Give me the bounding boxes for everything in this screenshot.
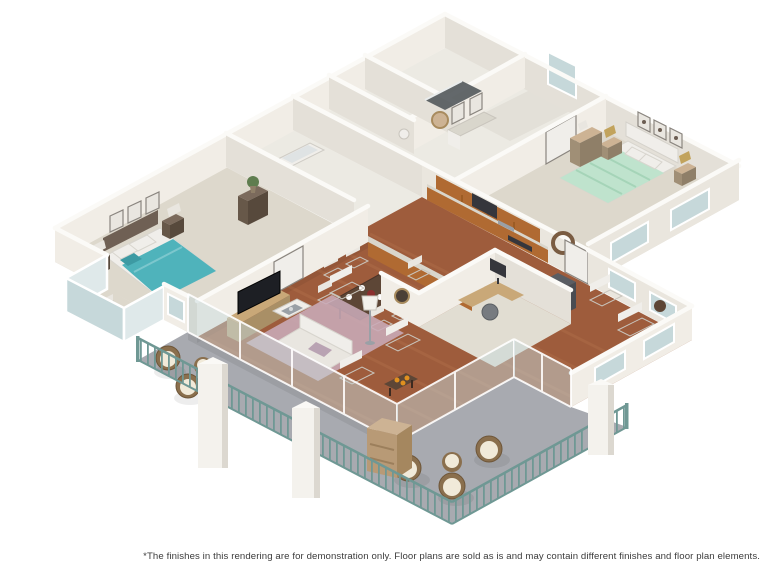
side-table <box>654 300 666 312</box>
round-mirror <box>432 112 448 128</box>
railing-end-post <box>625 403 629 429</box>
balcony-column <box>198 357 228 468</box>
floor-plan-rendering: *The finishes in this rendering are for … <box>0 0 764 573</box>
balcony-column <box>588 379 614 455</box>
balcony-column <box>292 401 320 498</box>
railing-end-post <box>136 336 140 362</box>
toilet <box>399 129 409 139</box>
floor-plan-svg <box>0 0 764 573</box>
disclaimer-text: *The finishes in this rendering are for … <box>0 551 760 562</box>
office-chair <box>482 304 498 320</box>
wall-mirror <box>395 289 409 303</box>
plant-pot <box>250 186 256 193</box>
